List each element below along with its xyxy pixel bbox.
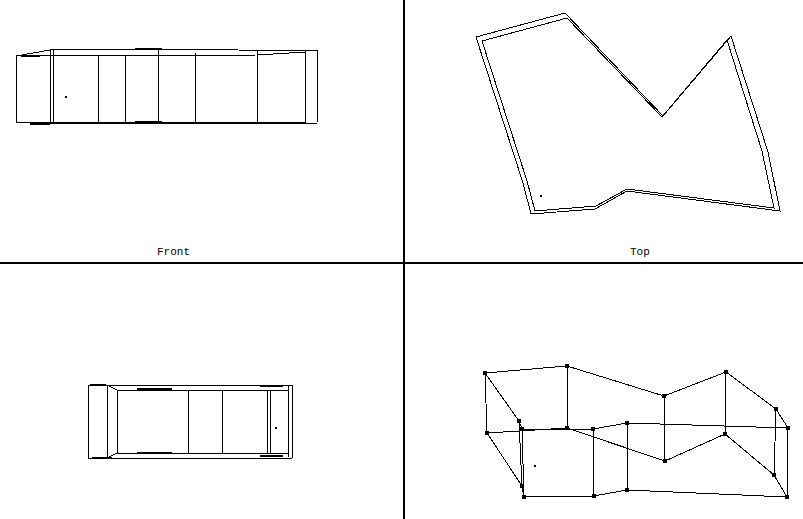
viewport-divider-vertical (403, 0, 405, 519)
viewport-user[interactable] (405, 264, 803, 519)
top-viewport-label: Top (630, 247, 650, 258)
viewport-top[interactable] (405, 0, 803, 262)
viewport-front[interactable] (0, 0, 403, 262)
side-wireframe-canvas (0, 264, 403, 519)
viewport-side[interactable] (0, 264, 403, 519)
front-viewport-label: Front (157, 247, 190, 258)
user-wireframe-canvas (405, 264, 803, 519)
front-wireframe-canvas (0, 0, 403, 262)
viewport-grid: Front Top (0, 0, 803, 519)
viewport-divider-horizontal (0, 262, 803, 264)
top-wireframe-canvas (405, 0, 803, 262)
